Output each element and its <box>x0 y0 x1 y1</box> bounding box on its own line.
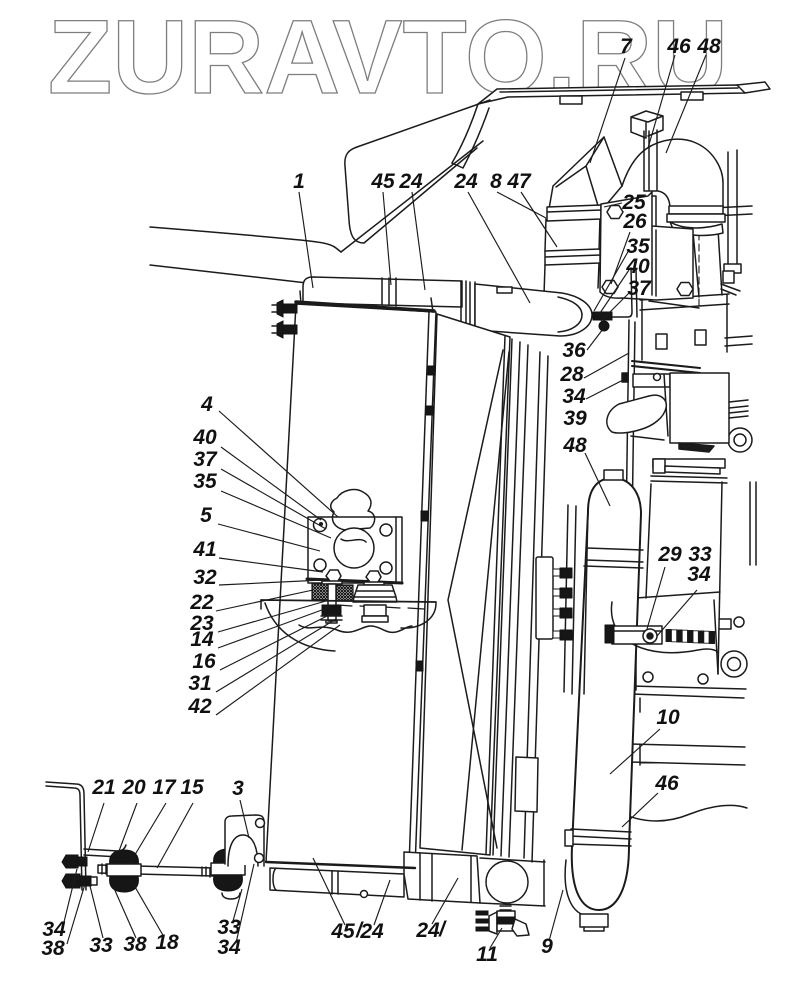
svg-text:1: 1 <box>293 170 305 193</box>
svg-text:10: 10 <box>656 706 680 729</box>
svg-text:41: 41 <box>192 538 216 561</box>
svg-text:24: 24 <box>415 919 440 942</box>
svg-text:46: 46 <box>654 772 679 795</box>
svg-text:18: 18 <box>155 931 179 954</box>
svg-text:32: 32 <box>193 566 217 589</box>
svg-text:45: 45 <box>330 920 355 943</box>
svg-text:37: 37 <box>627 277 652 300</box>
svg-text:45: 45 <box>370 170 395 193</box>
svg-text:21: 21 <box>91 776 115 799</box>
svg-text:ZURAVTO.RU: ZURAVTO.RU <box>48 0 728 116</box>
svg-text:40: 40 <box>192 426 217 449</box>
svg-text:24: 24 <box>359 920 384 943</box>
svg-text:11: 11 <box>476 943 498 966</box>
svg-text:3: 3 <box>232 777 244 800</box>
svg-text:35: 35 <box>193 470 217 493</box>
svg-text:38: 38 <box>123 933 147 956</box>
svg-text:24: 24 <box>398 170 423 193</box>
svg-text:9: 9 <box>541 935 553 958</box>
svg-text:26: 26 <box>622 210 647 233</box>
svg-text:28: 28 <box>559 363 584 386</box>
svg-text:16: 16 <box>192 650 216 673</box>
svg-text:48: 48 <box>696 35 721 58</box>
svg-text:34: 34 <box>687 563 711 586</box>
svg-text:4: 4 <box>200 393 213 416</box>
svg-text:22: 22 <box>189 591 214 614</box>
svg-text:20: 20 <box>121 776 146 799</box>
svg-text:17: 17 <box>152 776 177 799</box>
svg-text:29: 29 <box>657 543 682 566</box>
svg-text:40: 40 <box>625 255 650 278</box>
svg-text:8: 8 <box>490 170 502 193</box>
svg-text:34: 34 <box>217 936 241 959</box>
svg-text:47: 47 <box>506 170 532 193</box>
svg-text:14: 14 <box>190 628 214 651</box>
svg-text:37: 37 <box>193 448 218 471</box>
svg-text:39: 39 <box>563 407 587 430</box>
svg-text:46: 46 <box>666 35 691 58</box>
svg-text:5: 5 <box>200 504 212 527</box>
svg-text:33: 33 <box>89 934 113 957</box>
svg-text:7: 7 <box>620 35 633 58</box>
svg-text:42: 42 <box>187 695 212 718</box>
svg-text:24: 24 <box>453 170 478 193</box>
svg-text:48: 48 <box>562 434 587 457</box>
svg-text:34: 34 <box>562 385 586 408</box>
svg-text:38: 38 <box>41 937 65 960</box>
svg-text:36: 36 <box>562 339 586 362</box>
svg-text:31: 31 <box>188 672 211 695</box>
svg-text:15: 15 <box>180 776 204 799</box>
